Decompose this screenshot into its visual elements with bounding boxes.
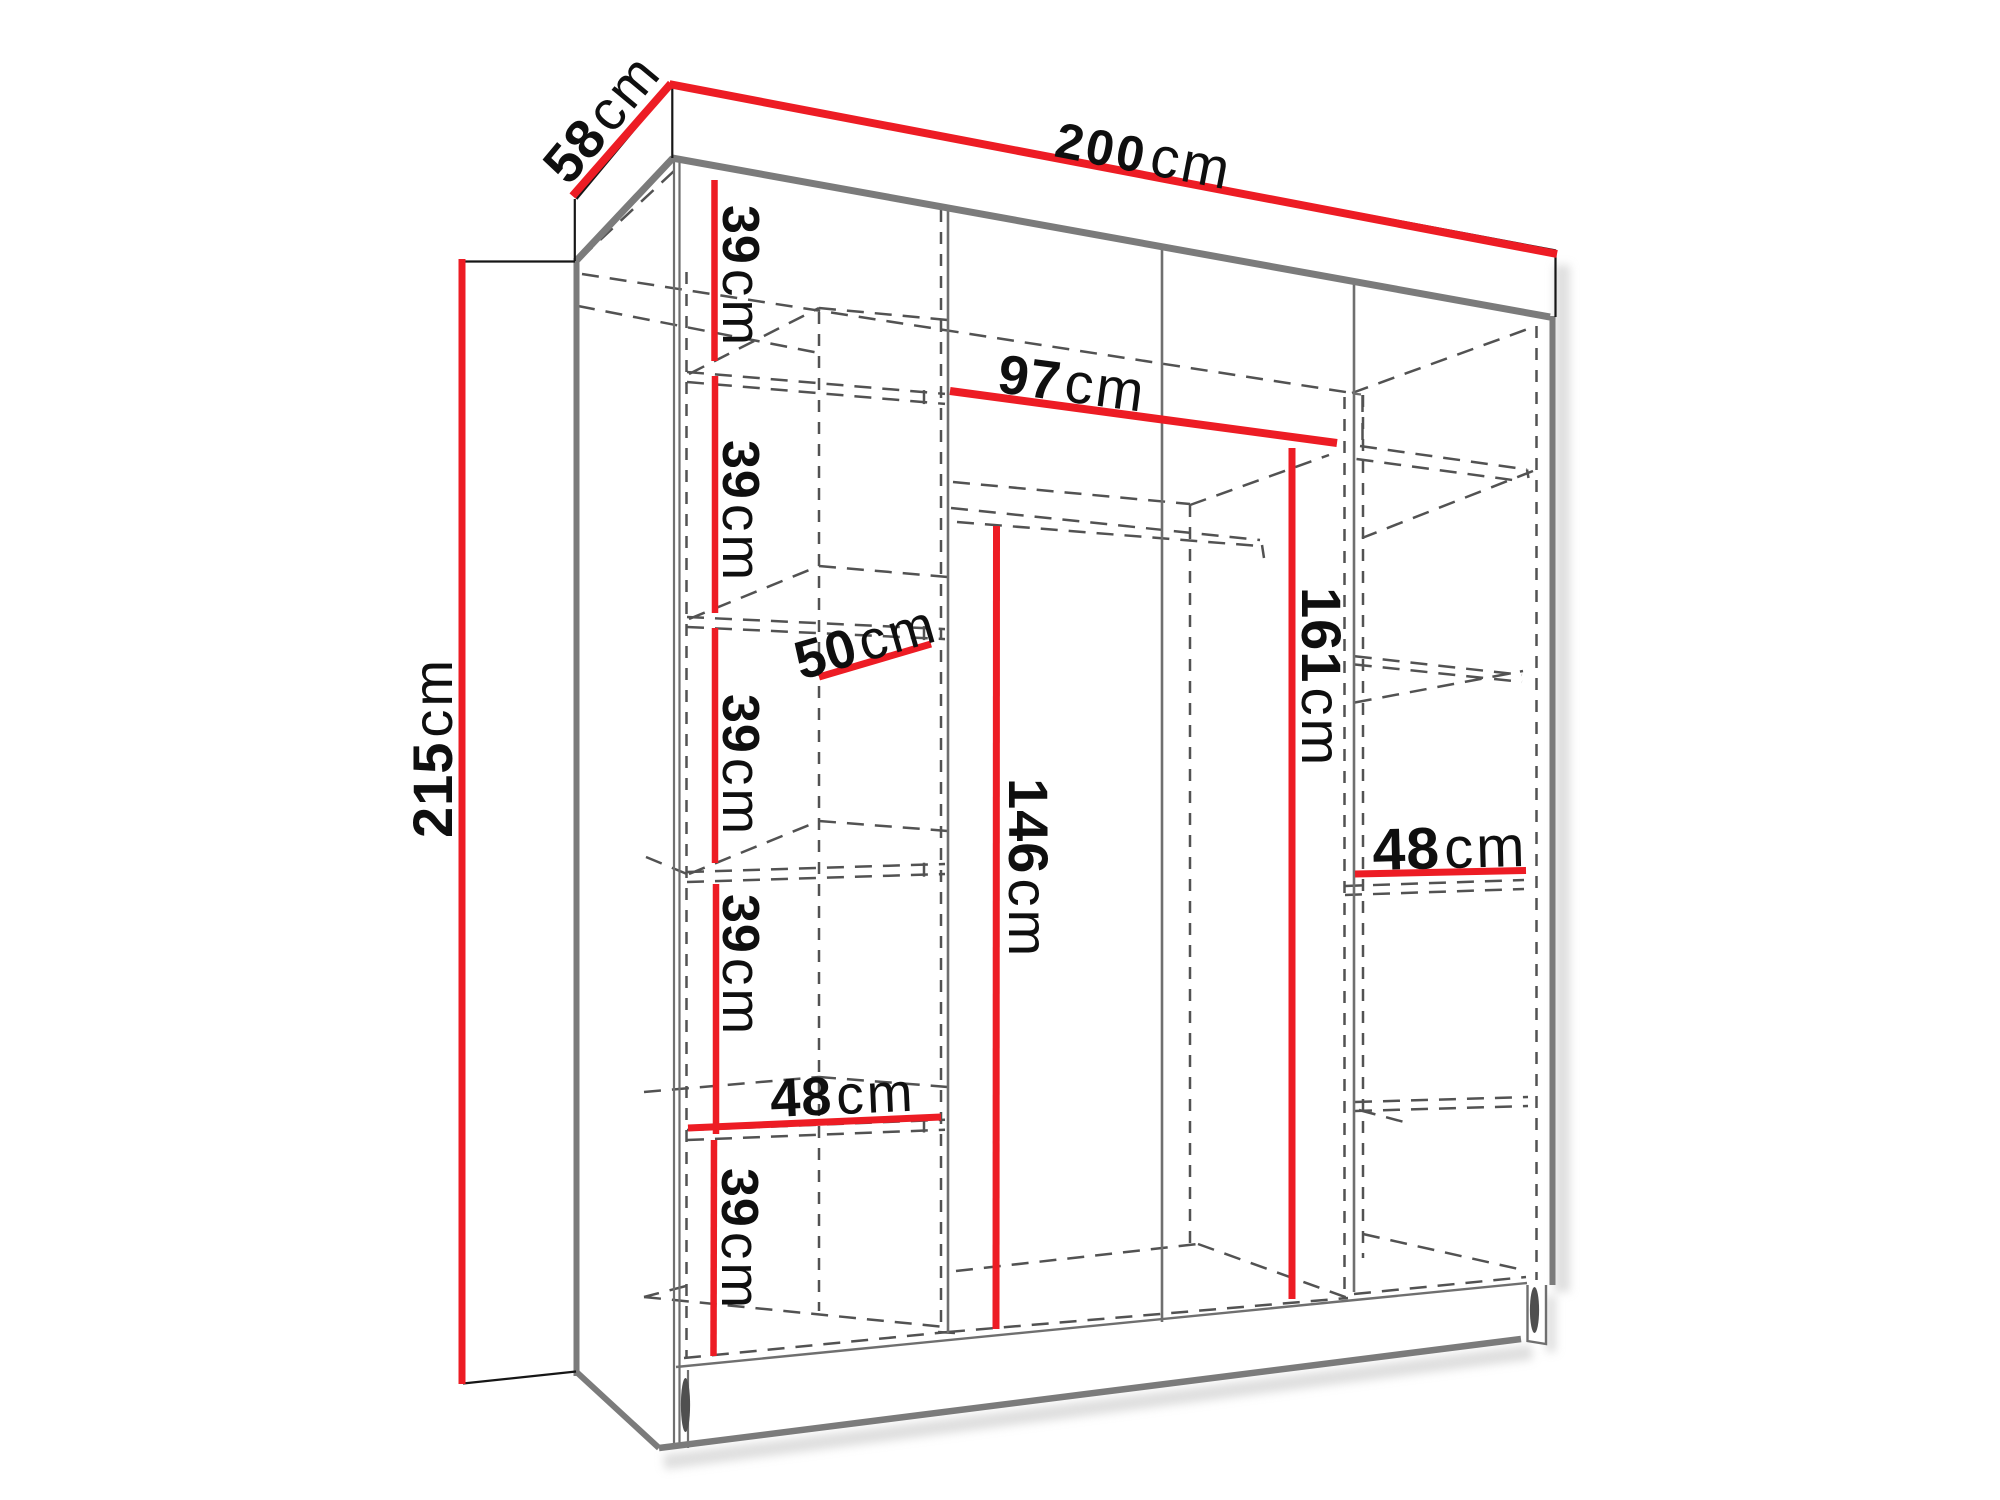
- svg-text:48cm: 48cm: [1372, 813, 1529, 883]
- svg-text:39cm: 39cm: [710, 1168, 772, 1311]
- svg-text:146cm: 146cm: [997, 778, 1060, 959]
- svg-text:215cm: 215cm: [401, 657, 464, 838]
- svg-text:39cm: 39cm: [711, 440, 773, 583]
- svg-text:161cm: 161cm: [1290, 587, 1353, 768]
- svg-text:48cm: 48cm: [769, 1061, 917, 1129]
- svg-text:39cm: 39cm: [711, 205, 773, 348]
- svg-text:39cm: 39cm: [711, 694, 773, 837]
- svg-text:39cm: 39cm: [711, 894, 773, 1037]
